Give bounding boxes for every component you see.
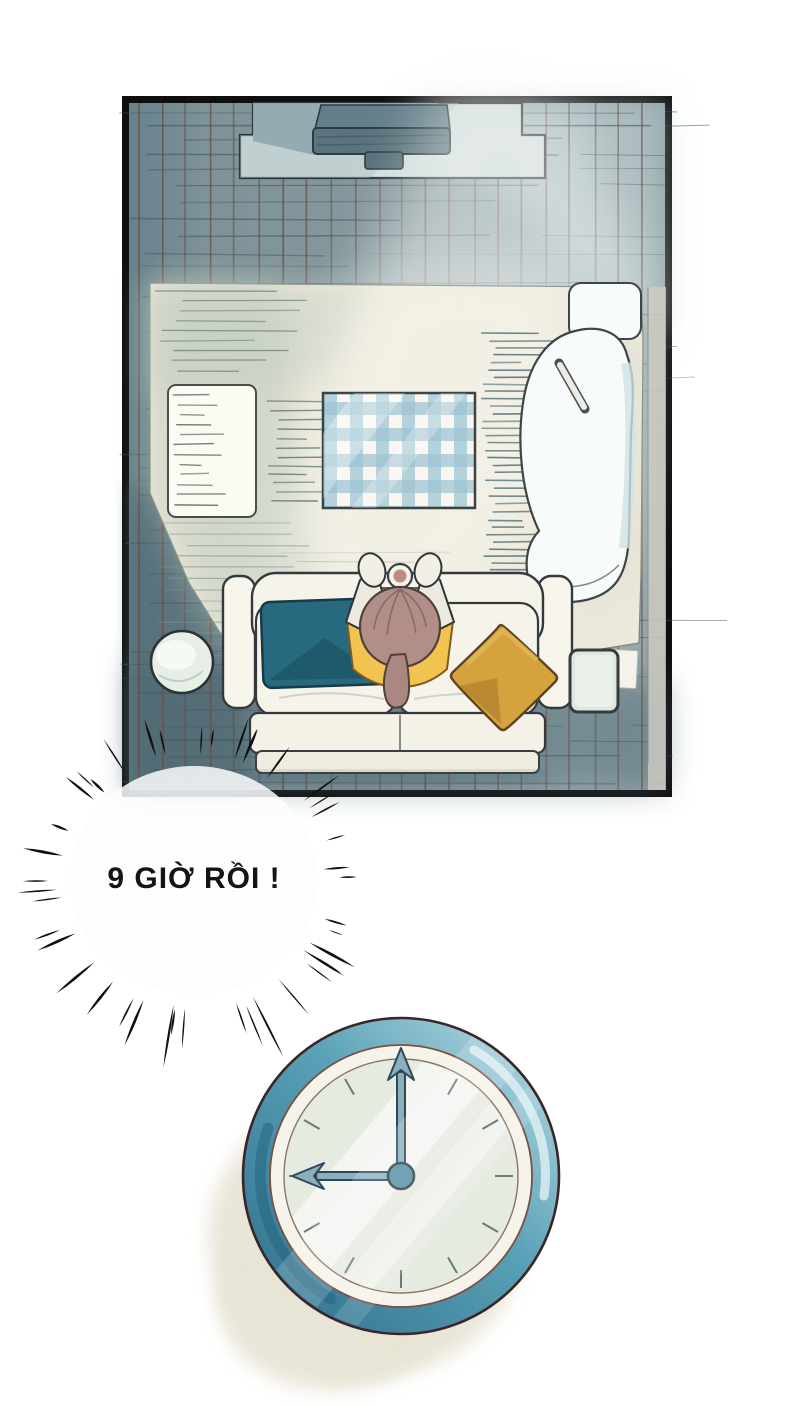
living-room-top-view <box>129 103 665 790</box>
sofa-armrest-left <box>223 576 255 708</box>
comic-panel-living-room <box>122 96 672 797</box>
tablet-screen <box>575 655 613 707</box>
speech-text: 9 GIỜ RỒI ! <box>64 862 324 896</box>
analog-wall-clock-icon <box>216 996 596 1406</box>
side-table-round <box>151 631 213 693</box>
speech-bubble: 9 GIỜ RỒI ! <box>30 730 370 1050</box>
bench <box>168 385 256 517</box>
ponytail <box>384 654 409 708</box>
wall-clock <box>216 996 596 1406</box>
wall-strip <box>648 287 666 790</box>
tv-stand <box>365 152 403 169</box>
